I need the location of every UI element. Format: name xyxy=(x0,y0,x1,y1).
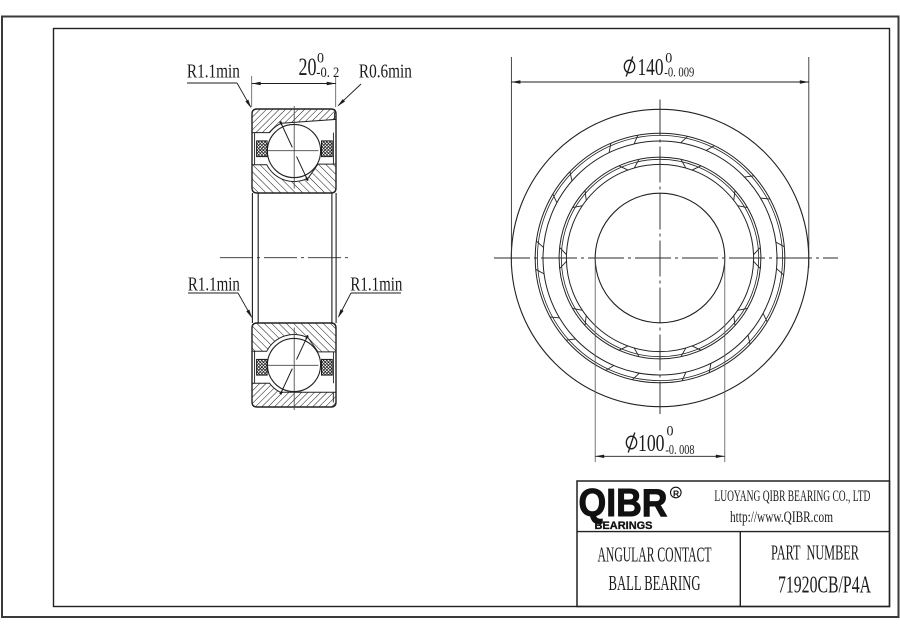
svg-text:http://www.QIBR.com: http://www.QIBR.com xyxy=(730,509,833,526)
svg-text:100: 100 xyxy=(638,431,665,457)
svg-text:BEARINGS: BEARINGS xyxy=(595,520,653,532)
svg-text:71920CB/P4A: 71920CB/P4A xyxy=(778,573,871,599)
svg-text:PART NUMBER: PART NUMBER xyxy=(771,541,859,565)
svg-text:LUOYANG QIBR BEARING CO., LTD: LUOYANG QIBR BEARING CO., LTD xyxy=(714,488,870,505)
svg-text:20: 20 xyxy=(299,54,317,81)
svg-text:-0. 009: -0. 009 xyxy=(664,66,694,81)
svg-text:0: 0 xyxy=(665,51,672,67)
svg-text:ANGULAR CONTACT: ANGULAR CONTACT xyxy=(598,543,712,567)
svg-text:R0.6min: R0.6min xyxy=(359,61,412,83)
svg-text:R1.1min: R1.1min xyxy=(188,274,240,296)
svg-text:0: 0 xyxy=(667,424,674,440)
svg-text:-0. 008: -0. 008 xyxy=(666,443,695,458)
svg-text:-0. 2: -0. 2 xyxy=(316,65,339,81)
svg-text:140: 140 xyxy=(638,55,664,81)
svg-text:R1.1min: R1.1min xyxy=(187,61,240,83)
svg-text:QIBR: QIBR xyxy=(579,482,668,525)
svg-text:R: R xyxy=(673,489,679,499)
svg-text:R1.1min: R1.1min xyxy=(350,274,402,296)
svg-text:BALL BEARING: BALL BEARING xyxy=(609,571,701,595)
